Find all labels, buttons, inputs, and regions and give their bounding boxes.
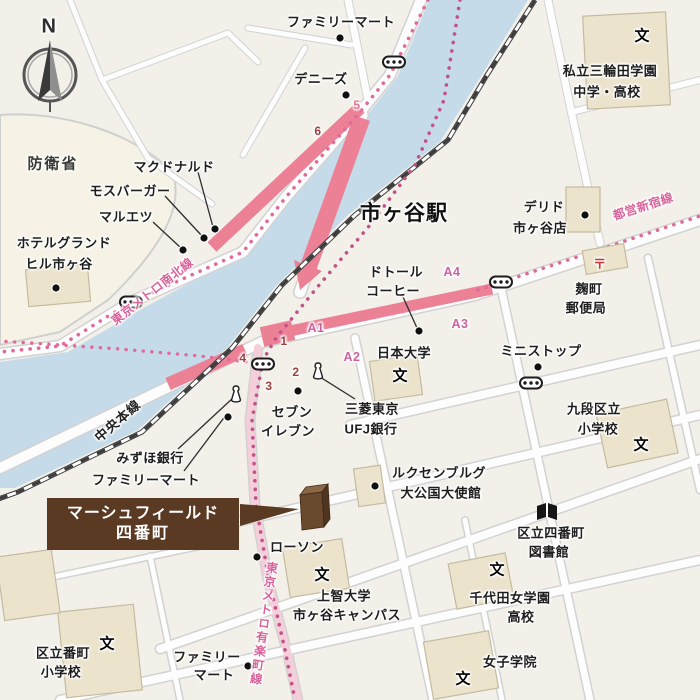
- property-title-box: マーシュフィールド 四番町: [47, 498, 239, 550]
- dot-dennys: [342, 91, 350, 99]
- property-building-marshfield: [300, 484, 330, 530]
- map-canvas[interactable]: N防衛省ファミリーマートデニーズマクドナルドモスバーガーマルエツホテルグランドヒ…: [0, 0, 700, 700]
- dot-mosburger: [200, 234, 208, 242]
- dot-maruetsu: [179, 246, 187, 254]
- subway-marker-hanzomon: [520, 378, 542, 389]
- property-name: マーシュフィールド: [67, 504, 219, 524]
- subway-marker-namboku-north: [383, 57, 405, 68]
- dot-lawson: [253, 553, 261, 561]
- subway-marker-yurakucho: [252, 359, 274, 370]
- dot-luxembourg: [371, 482, 379, 490]
- bank-icon-mitsubishi-ufj: [314, 363, 323, 379]
- dot-familymart-mid: [224, 413, 232, 421]
- dot-familymart-south: [244, 662, 252, 670]
- property-name-2: 四番町: [116, 524, 170, 544]
- building-bancho-school: [58, 604, 143, 697]
- building-luxembourg-embassy: [353, 465, 385, 506]
- building-sophia-univ: [282, 539, 349, 598]
- building-delido: [566, 187, 600, 232]
- dot-seven-eleven: [294, 387, 302, 395]
- building-west-block: [0, 549, 60, 620]
- map-geometry: [0, 0, 700, 700]
- dot-mcdonalds: [211, 225, 219, 233]
- dot-familymart-north: [336, 34, 344, 42]
- bank-icon-mizuho: [232, 386, 241, 402]
- dot-delido: [581, 211, 589, 219]
- building-joshi-gakuin: [423, 631, 498, 700]
- subway-marker-shinjuku-line: [490, 277, 512, 288]
- subway-marker-namboku-west: [120, 297, 142, 308]
- dot-ministop: [534, 363, 542, 371]
- dot-hotel-grandhill: [52, 284, 60, 292]
- building-nihon-univ: [369, 355, 422, 401]
- building-miwada-school: [583, 12, 671, 109]
- dot-doutor-coffee: [415, 327, 423, 335]
